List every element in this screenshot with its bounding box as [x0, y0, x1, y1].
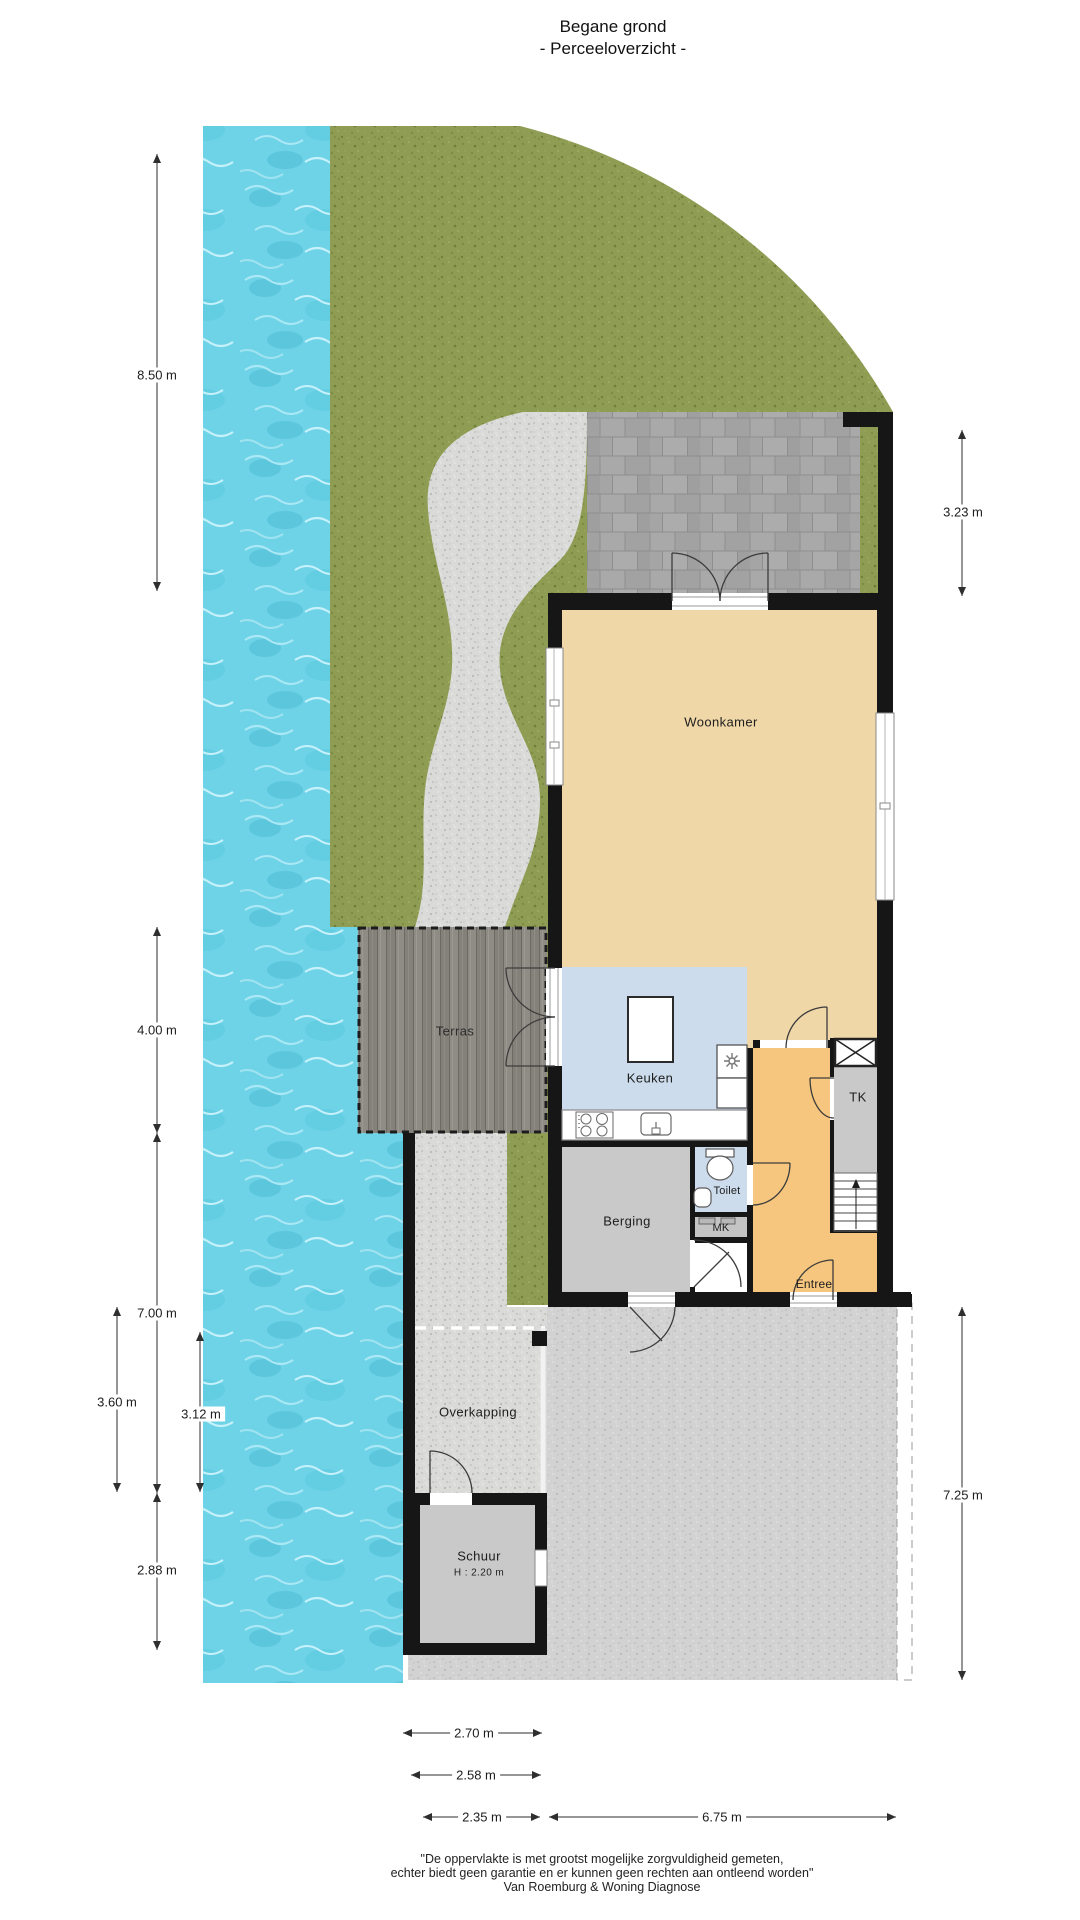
toilet-sink: [694, 1188, 711, 1207]
disclaimer-line2: echter biedt geen garantie en er kunnen …: [391, 1866, 814, 1880]
toilet-bowl: [707, 1156, 733, 1180]
room-label-overkapping: Overkapping: [439, 1405, 517, 1420]
title-line2: - Perceeloverzicht -: [540, 38, 686, 60]
overkapping-floor: [415, 1307, 547, 1493]
schuur-door-gap: [430, 1493, 472, 1505]
driveway-tile-grid: [547, 1307, 897, 1680]
shaft-box: [835, 1039, 876, 1066]
dim-2-58: 2.58 m: [452, 1768, 500, 1783]
title-line1: Begane grond: [540, 16, 686, 38]
room-label-toilet: Toilet: [714, 1185, 741, 1197]
room-label-woonkamer: Woonkamer: [684, 715, 757, 730]
window-left: [546, 648, 563, 785]
dim-2-35: 2.35 m: [458, 1810, 506, 1825]
dim-6-75: 6.75 m: [698, 1810, 746, 1825]
wall-bottom: [548, 1292, 911, 1307]
room-label-schuur: Schuur: [457, 1549, 501, 1564]
room-label-tk: TK: [849, 1090, 866, 1105]
wall-mk-bottom: [695, 1237, 753, 1243]
tk-door-gap: [830, 1077, 834, 1120]
schuur-window: [535, 1550, 547, 1586]
floorplan-canvas: Begane grond - Perceeloverzicht - Woonka…: [0, 0, 1080, 1920]
appliance-boxes: [717, 1045, 747, 1108]
keuken-hall-door-gap: [747, 1165, 753, 1205]
disclaimer-line3: Van Roemburg & Woning Diagnose: [391, 1880, 814, 1894]
room-label-terras: Terras: [436, 1024, 475, 1039]
boundary-strip: [897, 1303, 912, 1680]
dim-7-00: 7.00 m: [133, 1306, 181, 1321]
corner-block: [893, 1294, 912, 1307]
footer-disclaimer: "De oppervlakte is met grootst mogelijke…: [391, 1852, 814, 1894]
berging-hall-door-gap: [690, 1240, 695, 1287]
room-label-mk: MK: [713, 1222, 730, 1234]
disclaimer-line1: "De oppervlakte is met grootst mogelijke…: [391, 1852, 814, 1866]
overkapping-post: [532, 1331, 547, 1346]
dim-2-88: 2.88 m: [133, 1563, 181, 1578]
patio-wall-right: [878, 412, 893, 610]
wall-toilet-mk: [695, 1212, 747, 1217]
entree-floor-wide: [830, 1233, 877, 1292]
kitchen-sink: [641, 1113, 671, 1135]
page-title: Begane grond - Perceeloverzicht -: [540, 16, 686, 60]
dim-3-23: 3.23 m: [939, 505, 987, 520]
hall-door-gap: [760, 1040, 828, 1048]
hall-entree-floor: [753, 1048, 830, 1292]
paving-below-schuur: [408, 1655, 547, 1680]
wall-tk-left: [830, 1038, 834, 1232]
berging-exterior-door-gap: [628, 1292, 675, 1307]
dim-7-25: 7.25 m: [939, 1488, 987, 1503]
kitchen-island: [628, 997, 673, 1062]
tk-floor: [834, 1067, 877, 1173]
dim-8-50: 8.50 m: [133, 368, 181, 383]
window-right: [876, 713, 894, 900]
front-door-gap: [790, 1292, 837, 1307]
gravel-strip: [415, 1133, 507, 1307]
dim-4-00: 4.00 m: [133, 1023, 181, 1038]
room-label-keuken: Keuken: [627, 1071, 674, 1086]
dim-2-70: 2.70 m: [450, 1726, 498, 1741]
room-label-entree: Entree: [796, 1277, 833, 1291]
dim-3-12: 3.12 m: [177, 1407, 225, 1422]
room-label-berging: Berging: [603, 1214, 651, 1229]
patio-tiles: [587, 412, 860, 595]
floorplan-drawing: [0, 0, 1080, 1920]
room-label-schuur-height: H : 2.20 m: [454, 1568, 504, 1579]
dim-3-60: 3.60 m: [93, 1395, 141, 1410]
berging-hall-door-swing: [694, 1240, 741, 1287]
